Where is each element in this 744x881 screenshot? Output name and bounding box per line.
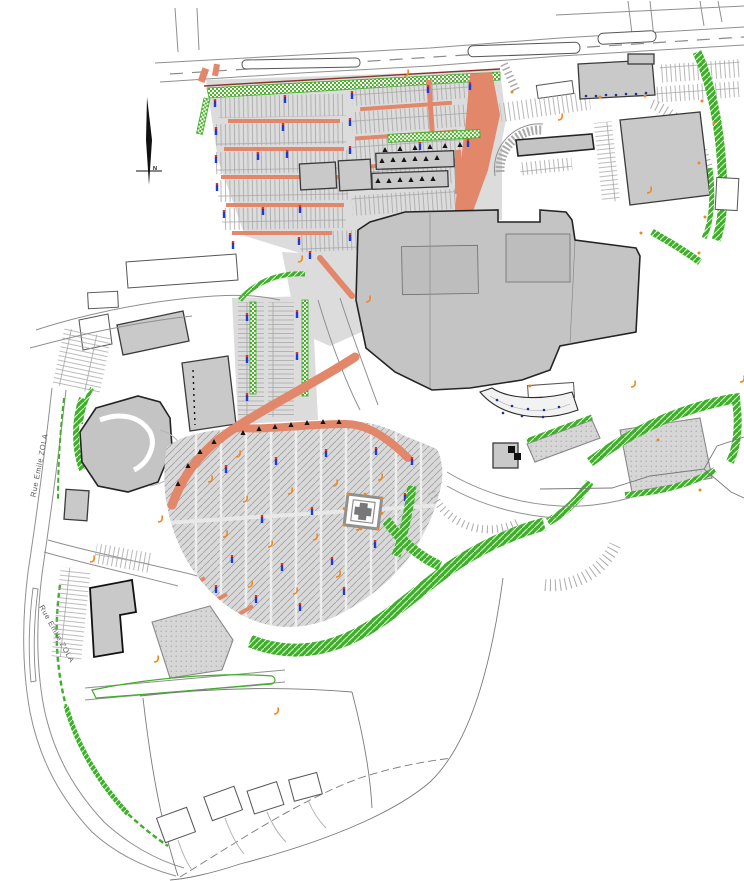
light-pole-icon: [349, 146, 351, 154]
light-pole-icon: [215, 155, 217, 163]
fixture-icon: [154, 656, 158, 663]
light-pole-icon: [216, 183, 218, 191]
light-pole-icon: [419, 142, 421, 150]
mall-main-building: [356, 210, 640, 390]
fixture-icon: [701, 100, 704, 103]
light-pole-icon: [349, 233, 351, 241]
light-pole-icon: [261, 515, 263, 523]
fixture-icon: [657, 439, 660, 442]
site-plan-canvas: N: [0, 0, 744, 881]
outbuilding: [88, 291, 119, 309]
annex-building: [152, 606, 233, 678]
tree-dot-icon: [585, 95, 588, 98]
fixture-icon: [698, 162, 701, 165]
outbuilding: [715, 177, 739, 210]
light-pole-icon: [246, 355, 248, 363]
light-pole-icon: [225, 465, 227, 473]
tree-dot-icon: [595, 95, 598, 98]
outbuilding: [64, 489, 89, 521]
light-pole-icon: [427, 85, 429, 93]
light-pole-icon: [311, 507, 313, 515]
light-pole-icon: [343, 587, 345, 595]
light-pole-icon: [231, 555, 233, 563]
light-pole-icon: [469, 82, 471, 90]
fixture-icon: [644, 95, 647, 98]
road-median-island: [598, 30, 656, 44]
house: [247, 782, 284, 814]
road-median-island: [242, 58, 360, 69]
light-pole-icon: [296, 352, 298, 360]
crosswalk-hatch: [504, 64, 517, 92]
light-pole-icon: [374, 540, 376, 548]
cross-monument: [340, 490, 385, 533]
planting-strip: [197, 98, 210, 134]
fixture-icon: [558, 114, 562, 121]
fixture-icon: [599, 96, 602, 99]
bollard-icon: [543, 409, 546, 412]
fixture-icon: [631, 381, 635, 388]
tree-dot-icon: [625, 93, 628, 96]
light-pole-icon: [299, 205, 301, 213]
tree-dot-icon: [615, 94, 618, 97]
light-pole-icon: [232, 241, 234, 249]
light-pole-icon: [467, 139, 469, 147]
cinema-building: [80, 396, 172, 492]
house: [157, 807, 196, 842]
curved-parking-row: [545, 545, 615, 585]
light-pole-icon: [215, 585, 217, 593]
bollard-icon: [511, 405, 514, 408]
fixture-icon: [274, 708, 278, 715]
fixture-icon: [698, 252, 701, 255]
light-pole-icon: [298, 237, 300, 245]
school-building: [90, 580, 136, 657]
landscape-band: [652, 232, 700, 262]
fixture-icon: [158, 516, 162, 523]
light-pole-icon: [275, 457, 277, 465]
light-pole-icon: [246, 393, 248, 401]
bollard-icon: [542, 416, 545, 419]
site-plan-page: N: [0, 0, 744, 881]
north-entrance-pavilion: [338, 159, 372, 191]
market-building: [182, 356, 236, 431]
light-pole-icon: [215, 127, 217, 135]
fixture-icon: [90, 556, 94, 563]
light-pole-icon: [286, 150, 288, 158]
light-pole-icon: [299, 603, 301, 611]
north-arrow: N: [136, 97, 162, 185]
bollard-icon: [502, 412, 505, 415]
hotel-block: [494, 81, 594, 176]
landscape-band: [66, 706, 128, 814]
light-pole-icon: [296, 310, 298, 318]
tree-dot-icon: [645, 92, 648, 95]
road-label-upper: Rue Emile ZOLA: [29, 433, 50, 498]
light-pole-icon: [351, 91, 353, 99]
store-building: [628, 54, 654, 64]
warehouse-outline: [126, 254, 238, 288]
light-pole-icon: [325, 449, 327, 457]
light-pole-icon: [331, 557, 333, 565]
light-pole-icon: [282, 123, 284, 131]
light-pole-icon: [309, 251, 311, 259]
light-pole-icon: [411, 457, 413, 465]
light-pole-icon: [255, 595, 257, 603]
light-pole-icon: [257, 152, 259, 160]
light-pole-icon: [375, 447, 377, 455]
north-arrow-label: N: [153, 166, 157, 172]
bollard-icon: [496, 399, 499, 402]
fixture-icon: [704, 216, 707, 219]
tree-dot-icon: [605, 94, 608, 97]
light-pole-icon: [349, 118, 351, 126]
light-pole-icon: [262, 207, 264, 215]
fixture-icon: [511, 91, 514, 94]
tree-dot-icon: [635, 93, 638, 96]
light-pole-icon: [281, 563, 283, 571]
long-building: [516, 134, 594, 156]
light-pole-icon: [246, 313, 248, 321]
bollard-icon: [558, 406, 561, 409]
fixture-icon: [529, 385, 532, 388]
fixture-icon: [740, 376, 744, 383]
northeast-block: [578, 52, 741, 262]
store-building: [578, 60, 655, 99]
store-building-east: [620, 112, 710, 205]
mall-courtyard: [402, 245, 479, 294]
grass-median: [92, 675, 275, 698]
north-entrance-pavilion: [299, 162, 336, 190]
fixture-icon: [699, 489, 702, 492]
bollard-icon: [521, 415, 524, 418]
house: [204, 786, 243, 820]
mall-courtyard: [506, 234, 570, 282]
road-median-island: [29, 588, 38, 682]
light-pole-icon: [284, 95, 286, 103]
fixture-icon: [640, 232, 643, 235]
light-pole-icon: [223, 210, 225, 218]
light-pole-icon: [214, 99, 216, 107]
bollard-icon: [527, 408, 530, 411]
planting-strip: [250, 302, 256, 394]
fixture-icon: [713, 122, 716, 125]
